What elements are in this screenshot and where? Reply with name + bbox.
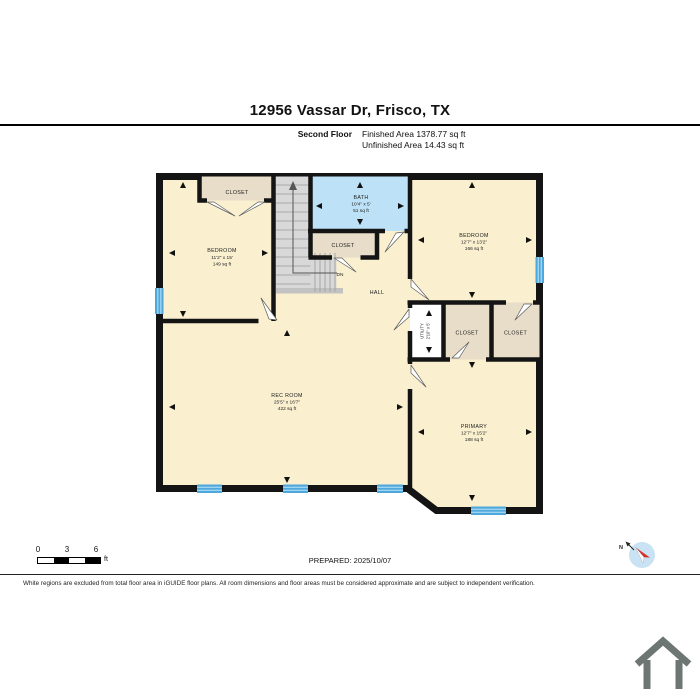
label-rec-room-name: REC ROOM bbox=[271, 393, 303, 399]
room-closet-top-left bbox=[200, 177, 274, 201]
label-bath-area: 51 sq ft bbox=[353, 208, 369, 214]
label-closet-mid-right: CLOSET bbox=[504, 331, 527, 337]
stairs-landing bbox=[276, 288, 343, 294]
floor-plan-page: 12956 Vassar Dr, Frisco, TX Second Floor… bbox=[0, 0, 700, 700]
label-bedroom-left-area: 149 sq ft bbox=[213, 262, 232, 268]
window-bottom-1 bbox=[197, 485, 222, 494]
label-bedroom-right-name: BEDROOM bbox=[459, 233, 488, 239]
label-bath-dims: 10'4" x 5' bbox=[351, 202, 370, 208]
label-bath-name: BATH bbox=[354, 195, 369, 201]
window-primary-bottom bbox=[471, 507, 506, 516]
label-closet-hall: CLOSET bbox=[332, 243, 355, 249]
label-hall: HALL bbox=[370, 290, 384, 296]
label-bedroom-right-dims: 12'7" x 13'2" bbox=[461, 240, 488, 246]
label-stairs-dn: DN bbox=[337, 272, 344, 278]
label-primary-name: PRIMARY bbox=[461, 424, 487, 430]
label-closet-tl: CLOSET bbox=[226, 190, 249, 196]
label-bedroom-left-dims: 11'2" x 15' bbox=[211, 255, 233, 261]
north-arrow-icon bbox=[626, 542, 635, 551]
scale-tick-0: 0 bbox=[32, 545, 44, 554]
scale-tick-3: 3 bbox=[61, 545, 73, 554]
house-icon bbox=[637, 641, 689, 689]
label-bedroom-left-name: BEDROOM bbox=[207, 248, 236, 254]
label-primary-dims: 12'7" x 15'2" bbox=[461, 431, 488, 437]
floor-plan-drawing: CLOSET BEDROOM 11'2" x 15' 149 sq ft BAT… bbox=[0, 0, 700, 700]
label-bedroom-right-area: 166 sq ft bbox=[465, 246, 484, 252]
compass-north-label: N bbox=[619, 545, 623, 551]
label-primary-area: 188 sq ft bbox=[465, 437, 484, 443]
window-right-wall bbox=[536, 257, 545, 283]
label-rec-room-area: 422 sq ft bbox=[278, 406, 297, 412]
label-utility-name: UTILITY bbox=[420, 323, 425, 339]
scale-tick-6: 6 bbox=[90, 545, 102, 554]
window-bottom-2 bbox=[283, 485, 308, 494]
label-rec-room-dims: 25'5" x 16'7" bbox=[274, 400, 301, 406]
footer-divider bbox=[0, 574, 700, 575]
prepared-date: PREPARED: 2025/10/07 bbox=[0, 556, 700, 565]
window-bottom-3 bbox=[377, 485, 403, 494]
disclaimer-text: White regions are excluded from total fl… bbox=[23, 580, 683, 587]
window-left-wall bbox=[155, 288, 164, 314]
label-utility-dims: 2'10" x 5' bbox=[426, 322, 431, 339]
label-closet-mid-left: CLOSET bbox=[456, 331, 479, 337]
